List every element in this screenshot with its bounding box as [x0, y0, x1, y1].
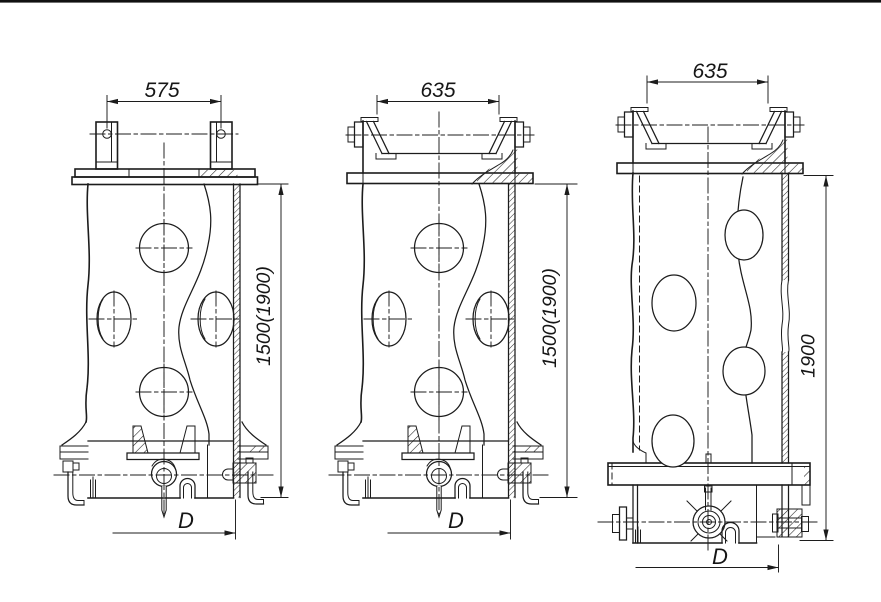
view-column-with-socket-top-long: 635 1900 D [598, 60, 833, 572]
view-column-with-lifting-lugs: 575 1500(1900) D [54, 79, 288, 539]
top-flange [72, 169, 258, 185]
dim-label-top-width-3: 635 [692, 60, 727, 83]
dimension-top-width: 575 [107, 79, 221, 128]
dim-label-diameter-2: D [448, 508, 464, 533]
shell-holes [652, 210, 765, 467]
dim-label-diameter-3: D [712, 544, 728, 569]
sheet-top-border [0, 0, 881, 3]
socket-top [346, 118, 534, 185]
dim-label-diameter-1: D [178, 508, 194, 533]
drawing-canvas: 575 1500(1900) D 635 [0, 0, 881, 602]
dim-label-top-width-1: 575 [144, 79, 179, 102]
dimension-base-diameter: D [388, 500, 511, 539]
technical-drawing-sheet: 575 1500(1900) D 635 [0, 0, 881, 602]
dim-label-height-1: 1500(1900) [253, 266, 275, 366]
dim-label-top-width-2: 635 [420, 79, 455, 102]
dimension-top-width: 635 [377, 79, 499, 114]
dimension-base-diameter: D [113, 500, 236, 539]
view-column-with-socket-top: 635 1500(1900) D [329, 79, 577, 539]
dimension-top-width: 635 [647, 60, 768, 103]
shell-body [54, 143, 273, 517]
center-pivot-detail [687, 486, 731, 541]
dimension-base-diameter: D [636, 544, 779, 572]
dim-label-height-3: 1900 [798, 334, 820, 378]
dim-label-height-2: 1500(1900) [539, 268, 561, 368]
socket-top [616, 108, 804, 175]
